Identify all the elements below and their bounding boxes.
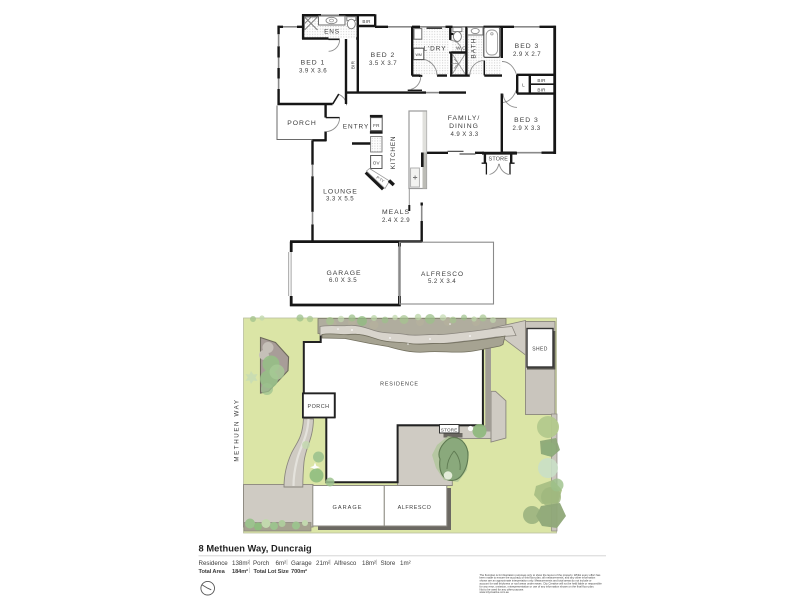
svg-text:DINING: DINING: [449, 123, 479, 130]
svg-text:Alfresco: Alfresco: [334, 560, 357, 567]
svg-text:2.9 X 2.7: 2.9 X 2.7: [513, 51, 541, 58]
svg-text:MEALS: MEALS: [382, 209, 410, 216]
svg-text:BED 1: BED 1: [301, 60, 326, 67]
svg-text:FAMILY/: FAMILY/: [448, 115, 481, 122]
svg-text:2.9 X 3.3: 2.9 X 3.3: [513, 125, 541, 132]
svg-text:Residence: Residence: [199, 560, 229, 567]
svg-text:ENS: ENS: [324, 29, 340, 36]
svg-text:BIR: BIR: [362, 19, 371, 24]
svg-text:STORE: STORE: [489, 157, 509, 163]
svg-text:3.9 X 3.6: 3.9 X 3.6: [299, 68, 327, 75]
svg-text:Garage: Garage: [291, 560, 312, 567]
svg-text:OV: OV: [373, 161, 381, 166]
svg-text:6.0 X 3.5: 6.0 X 3.5: [329, 277, 357, 284]
svg-text:FR: FR: [373, 123, 380, 128]
svg-text:www.citycreative.com.au: www.citycreative.com.au: [480, 590, 510, 594]
svg-text:6m²: 6m²: [276, 560, 287, 567]
svg-text:21m²: 21m²: [316, 560, 330, 567]
svg-text:700m²: 700m²: [291, 568, 307, 575]
svg-text:ALFRESCO: ALFRESCO: [398, 505, 432, 511]
svg-text:W.C: W.C: [456, 46, 466, 52]
svg-text:GARAGE: GARAGE: [326, 270, 361, 277]
svg-text:LOUNGE: LOUNGE: [323, 188, 358, 195]
svg-text:8 Methuen Way, Duncraig: 8 Methuen Way, Duncraig: [199, 544, 313, 554]
svg-text:WM: WM: [416, 53, 422, 57]
svg-text:STORE: STORE: [441, 427, 458, 432]
svg-text:4.9 X 3.3: 4.9 X 3.3: [451, 131, 479, 138]
svg-text:138m²: 138m²: [232, 560, 250, 567]
svg-text:BED 2: BED 2: [371, 52, 396, 59]
svg-text:BIR: BIR: [351, 60, 356, 69]
svg-text:ENTRY: ENTRY: [343, 124, 370, 131]
svg-text:KITCHEN: KITCHEN: [390, 136, 397, 170]
svg-text:2.4 X 2.9: 2.4 X 2.9: [382, 217, 410, 224]
svg-text:BATH: BATH: [471, 37, 478, 58]
svg-text:L’DRY: L’DRY: [424, 46, 447, 53]
svg-text:3.3 X 5.5: 3.3 X 5.5: [326, 196, 354, 203]
svg-text:184m²: 184m²: [232, 568, 248, 575]
svg-text:3.5 X 3.7: 3.5 X 3.7: [369, 60, 397, 67]
svg-text:5.2 X 3.4: 5.2 X 3.4: [428, 278, 456, 285]
svg-text:Store: Store: [381, 560, 396, 567]
svg-text:L: L: [522, 83, 525, 88]
svg-text:BED 3: BED 3: [514, 117, 539, 124]
svg-text:ALFRESCO: ALFRESCO: [421, 271, 464, 278]
svg-text:Total Lot Size: Total Lot Size: [254, 569, 289, 575]
svg-text:RESIDENCE: RESIDENCE: [380, 382, 419, 388]
svg-text:PORCH: PORCH: [308, 404, 330, 410]
svg-text:18m²: 18m²: [362, 560, 376, 567]
svg-text:SHED: SHED: [532, 347, 548, 353]
svg-text:Total Area: Total Area: [199, 569, 226, 575]
svg-text:METHUEN WAY: METHUEN WAY: [234, 398, 241, 461]
svg-text:1m²: 1m²: [400, 560, 411, 567]
svg-text:BED 3: BED 3: [515, 43, 540, 50]
svg-text:GARAGE: GARAGE: [333, 505, 363, 511]
svg-text:BIR: BIR: [537, 78, 546, 83]
svg-text:Porch: Porch: [253, 560, 270, 567]
svg-text:PORCH: PORCH: [287, 120, 317, 127]
svg-text:BIR: BIR: [537, 88, 546, 93]
